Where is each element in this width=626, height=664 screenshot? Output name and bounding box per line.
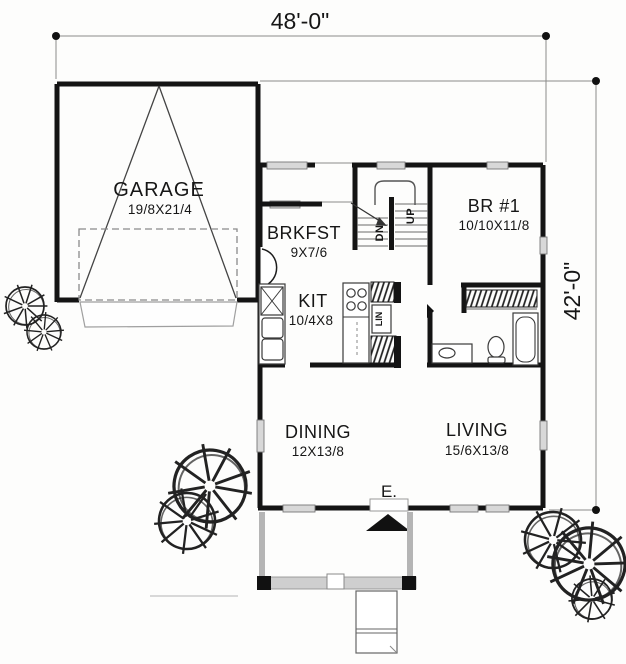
garage-house-door [262, 249, 277, 287]
entry-arrow-icon [366, 514, 410, 531]
porch-notch [327, 574, 344, 589]
bedroom1: BR #1 10/10X11/8 [427, 196, 543, 318]
stair-stringer [389, 197, 394, 250]
entry: E. [366, 482, 410, 531]
kitchen: LIN KIT 10/4X8 [258, 282, 401, 368]
garage-label: GARAGE [113, 179, 205, 201]
floor-plan: 48'-0" 42'-0" GARAGE 19/8X21/4 [0, 0, 626, 664]
breakfast-room: BRKFST 9X7/6 [262, 223, 341, 287]
garage-room: GARAGE 19/8X21/4 [57, 84, 258, 327]
dining-label: DINING [285, 422, 351, 442]
tree [4, 285, 48, 329]
toilet-icon [488, 337, 504, 358]
linen-shelf-hatch [371, 282, 394, 302]
dining-room: DINING 12X13/8 [285, 422, 351, 459]
range-burner-icon [358, 289, 366, 297]
porch [150, 512, 416, 653]
stairs-dn-label: DN [374, 225, 386, 242]
bathroom [427, 311, 543, 366]
window [486, 505, 509, 512]
porch-post [257, 576, 271, 590]
breakfast-label: BRKFST [267, 223, 341, 243]
living-size: 15/6X13/8 [445, 443, 509, 458]
linen-shelf-hatch [371, 336, 396, 363]
refrigerator-icon [262, 339, 283, 360]
staircase: DN UP [351, 165, 430, 285]
refrigerator-icon [262, 318, 283, 338]
vanity-sink-icon [439, 348, 455, 358]
window [540, 237, 547, 254]
dim-dot [52, 32, 60, 40]
closet-hatch [466, 290, 537, 307]
linen-label: LIN [374, 312, 384, 327]
window [267, 162, 307, 169]
range-burner-icon [347, 289, 355, 297]
window [450, 505, 478, 512]
window [487, 162, 508, 169]
range-burner-icon [358, 302, 366, 310]
window [257, 420, 264, 452]
bedroom1-label: BR #1 [468, 196, 521, 216]
window [540, 421, 547, 450]
kitchen-size: 10/4X8 [289, 313, 334, 328]
entry-label: E. [381, 482, 397, 501]
stair-rail [375, 181, 415, 205]
window [283, 505, 315, 512]
bedroom1-size: 10/10X11/8 [458, 218, 529, 233]
range-burner-icon [347, 302, 355, 310]
dim-height-label: 42'-0" [559, 262, 585, 321]
dim-dot [542, 32, 550, 40]
toilet-base [488, 357, 505, 363]
entry-steps [356, 591, 397, 653]
garage-door-clearance [79, 229, 237, 300]
porch-post [402, 576, 416, 590]
vestibule [260, 202, 352, 204]
living-label: LIVING [446, 420, 508, 440]
dim-dot [592, 506, 600, 514]
garage-size: 19/8X21/4 [128, 202, 192, 217]
garage-apron [80, 302, 237, 327]
living-room: LIVING 15/6X13/8 [445, 420, 509, 458]
window [377, 162, 405, 169]
breakfast-size: 9X7/6 [291, 245, 328, 260]
dim-width-label: 48'-0" [271, 8, 330, 34]
stairs-up-label: UP [405, 208, 417, 224]
kitchen-label: KIT [298, 291, 328, 311]
dining-size: 12X13/8 [292, 444, 344, 459]
dim-dot [592, 77, 600, 85]
